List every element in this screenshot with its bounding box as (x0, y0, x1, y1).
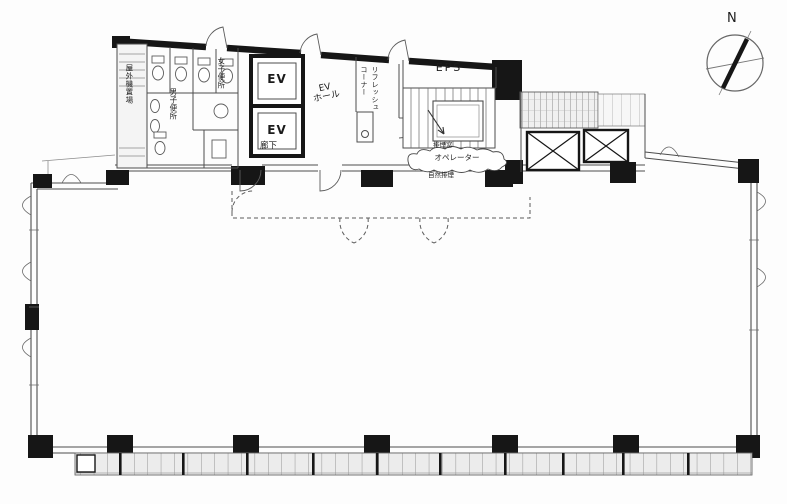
staircase (403, 88, 495, 148)
planter-box (77, 455, 95, 472)
label-smoke-vent: 排煙窓 (433, 142, 453, 149)
hall-outer-walls (31, 160, 757, 453)
label-corridor: 廊下 (260, 142, 277, 151)
label-elevator-1: EV (257, 73, 297, 86)
label-womens-toilet: 女子便所 (217, 57, 225, 101)
dashed-partition (232, 191, 530, 243)
bottom-window-band (75, 453, 752, 475)
window-awning-marks (23, 175, 766, 386)
label-natural-vent: 自然排煙 (428, 172, 454, 179)
corridor-door-swing (320, 170, 341, 191)
top-wall-door-swings (206, 27, 409, 61)
label-outdoor-unit-area: 屋外機置場 (125, 64, 133, 168)
right-wing (520, 92, 679, 172)
floorplan-drawing (0, 0, 787, 504)
compass-north-icon (706, 31, 764, 95)
label-elevator-2: EV (257, 124, 297, 137)
floor-plan: N 屋外機置場 女子便所 男子便所 EV EV EVホール 廊下 リフレッシュ … (0, 0, 787, 504)
label-mens-toilet: 男子便所 (169, 88, 177, 148)
label-eps: EPS (414, 62, 484, 74)
north-label: N (727, 12, 737, 26)
shaft-x-box-2 (584, 130, 628, 162)
label-operator-note: オペレーター (408, 154, 506, 162)
shaft-x-box-1 (527, 132, 579, 170)
label-refresh-corner: リフレッシュ コーナー (358, 66, 380, 150)
